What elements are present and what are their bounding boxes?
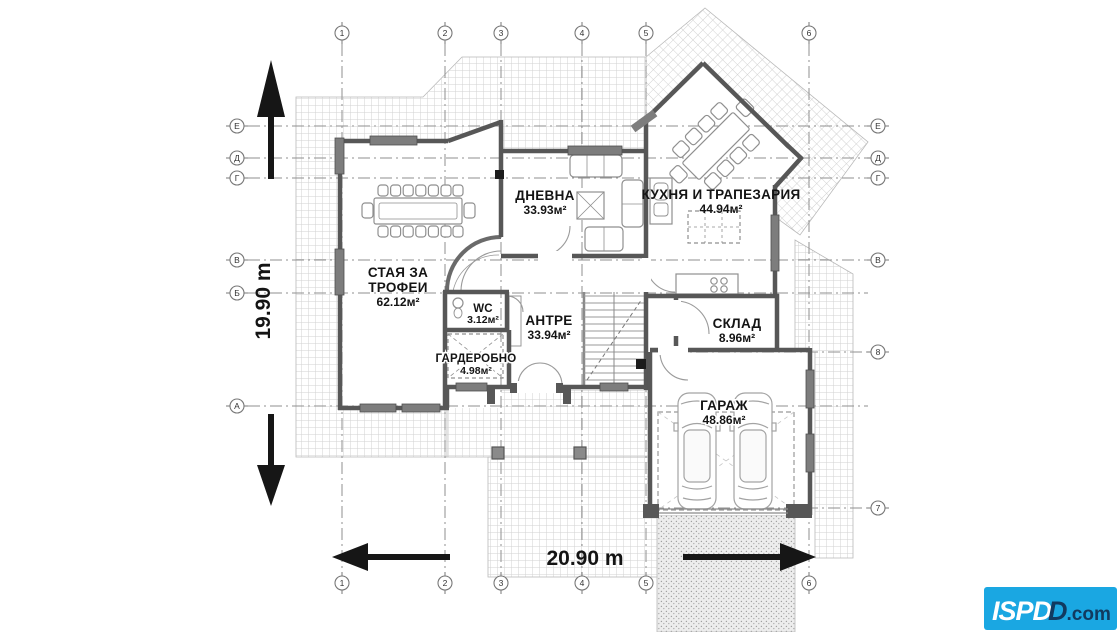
- sofa-right: [622, 180, 643, 227]
- room-area-entry: 33.94м²: [528, 328, 571, 342]
- axis-label: 3: [499, 28, 504, 38]
- axis-label: 2: [443, 578, 448, 588]
- floor-plan-canvas: СТАЯ ЗА ТРОФЕИ 62.12м² ДНЕВНА 33.93м² КУ…: [0, 0, 1120, 632]
- trophy-table: [362, 185, 475, 237]
- window: [456, 383, 487, 391]
- axis-label: А: [234, 401, 240, 411]
- axis-label: 8: [876, 347, 881, 357]
- axis-label: Г: [235, 173, 240, 183]
- axis-label: 5: [644, 578, 649, 588]
- axis-label: 1: [340, 28, 345, 38]
- porch-column: [574, 447, 586, 459]
- logo-overlap-text: D: [1048, 596, 1067, 626]
- room-label-living: ДНЕВНА: [515, 188, 574, 203]
- room-area-living: 33.93м²: [524, 203, 567, 217]
- room-area-wardrobe: 4.98м²: [460, 365, 492, 377]
- floor-plan-page: СТАЯ ЗА ТРОФЕИ 62.12м² ДНЕВНА 33.93м² КУ…: [0, 0, 1120, 632]
- room-label-storage: СКЛАД: [713, 316, 762, 331]
- window: [335, 249, 344, 295]
- dimension-height: 19.90 m: [252, 262, 275, 339]
- sofa: [570, 155, 622, 177]
- window: [568, 146, 622, 155]
- axis-label: Б: [234, 288, 240, 298]
- garage-door-post: [786, 504, 812, 518]
- garage-door-post: [643, 504, 659, 518]
- axis-label: Д: [875, 153, 881, 163]
- window: [771, 215, 779, 271]
- room-area-storage: 8.96м²: [719, 331, 755, 345]
- axis-label: 6: [807, 578, 812, 588]
- chimney-flue: [636, 359, 646, 369]
- axis-label: 4: [580, 578, 585, 588]
- room-area-garage: 48.86м²: [703, 413, 746, 427]
- porch-column: [492, 447, 504, 459]
- window: [806, 434, 814, 472]
- kitchen-counter-bottom: [676, 274, 738, 294]
- chimney-flue: [495, 170, 504, 179]
- axis-label: 2: [443, 28, 448, 38]
- room-label-trophy-2: ТРОФЕИ: [368, 280, 428, 295]
- window: [402, 404, 440, 412]
- axis-label: В: [234, 255, 240, 265]
- window: [335, 138, 344, 174]
- room-area-wc: 3.12м²: [467, 314, 499, 326]
- room-label-entry: АНТРЕ: [525, 313, 572, 328]
- axis-label: Г: [876, 173, 881, 183]
- room-label-garage: ГАРАЖ: [700, 398, 748, 413]
- logo-tld-text: .com: [1067, 604, 1111, 625]
- window: [370, 136, 417, 145]
- window: [806, 370, 814, 408]
- axis-label: Е: [875, 121, 881, 131]
- axis-label: 1: [340, 578, 345, 588]
- axis-label: Е: [234, 121, 240, 131]
- axis-label: 6: [807, 28, 812, 38]
- axis-label: 3: [499, 578, 504, 588]
- room-area-trophy: 62.12м²: [377, 295, 420, 309]
- room-area-kitchen: 44.94м²: [700, 202, 743, 216]
- window: [360, 404, 396, 412]
- axis-label: 4: [580, 28, 585, 38]
- room-label-kitchen: КУХНЯ И ТРАПЕЗАРИЯ: [642, 187, 801, 202]
- room-label-trophy-1: СТАЯ ЗА: [368, 265, 428, 280]
- window: [600, 383, 628, 391]
- axis-label: 7: [876, 503, 881, 513]
- logo-brand-text: ISPD: [992, 596, 1052, 626]
- driveway: [657, 515, 795, 632]
- logo[interactable]: ISPDD.com: [984, 587, 1117, 630]
- axis-label: В: [875, 255, 881, 265]
- dimension-width: 20.90 m: [546, 547, 623, 570]
- axis-label: Д: [234, 153, 240, 163]
- room-label-wardrobe: ГАРДЕРОБНО: [436, 353, 517, 365]
- axis-label: 5: [644, 28, 649, 38]
